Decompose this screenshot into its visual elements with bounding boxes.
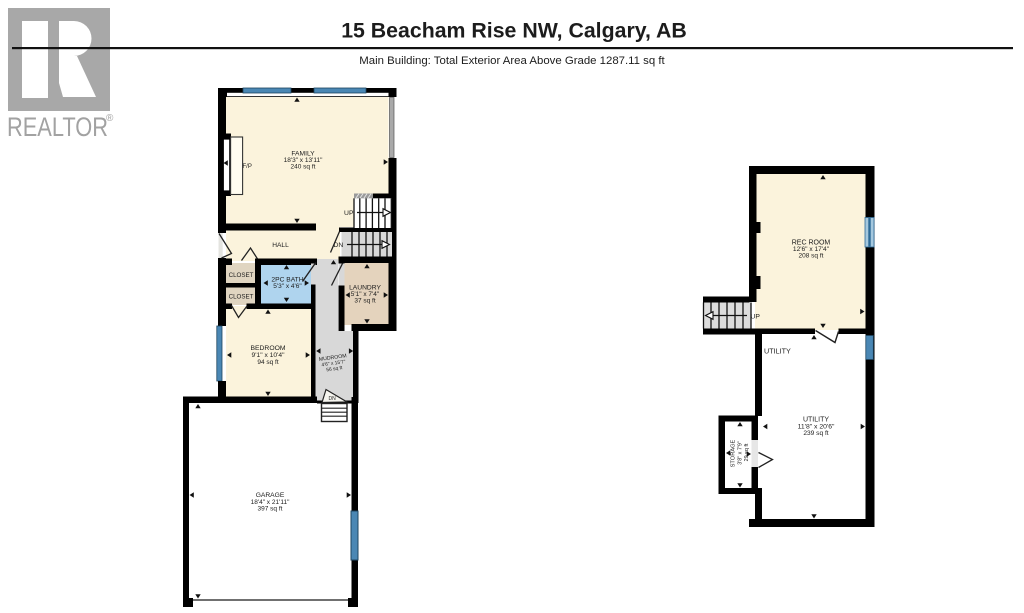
svg-text:239 sq ft: 239 sq ft [803,430,828,437]
svg-text:208 sq ft: 208 sq ft [799,253,824,260]
svg-text:9'1" x 10'4": 9'1" x 10'4" [252,352,286,359]
svg-text:F/P: F/P [243,164,252,170]
svg-text:®: ® [106,113,114,124]
svg-text:240 sq ft: 240 sq ft [291,164,316,171]
svg-text:BEDROOM: BEDROOM [250,345,285,352]
svg-text:HALL: HALL [272,242,289,249]
svg-text:CLOSET: CLOSET [229,272,254,279]
svg-text:94 sq ft: 94 sq ft [257,359,279,366]
svg-text:DN: DN [329,396,337,402]
svg-text:UTILITY: UTILITY [764,347,791,356]
svg-text:DN: DN [334,242,344,249]
svg-text:Main Building: Total Exterior: Main Building: Total Exterior Area Above… [359,55,665,67]
svg-text:37 sq ft: 37 sq ft [354,298,376,305]
svg-text:REALTOR: REALTOR [7,112,108,142]
svg-text:CLOSET: CLOSET [229,294,254,301]
svg-text:397 sq ft: 397 sq ft [258,506,283,513]
svg-text:3'8" x 7'9": 3'8" x 7'9" [738,441,744,465]
svg-text:STORAGE: STORAGE [731,439,737,467]
svg-text:UP: UP [344,210,354,217]
svg-text:15 Beacham Rise NW, Calgary, A: 15 Beacham Rise NW, Calgary, AB [341,19,687,43]
svg-text:5'3" x 4'6": 5'3" x 4'6" [273,283,302,290]
svg-text:UP: UP [751,314,761,321]
